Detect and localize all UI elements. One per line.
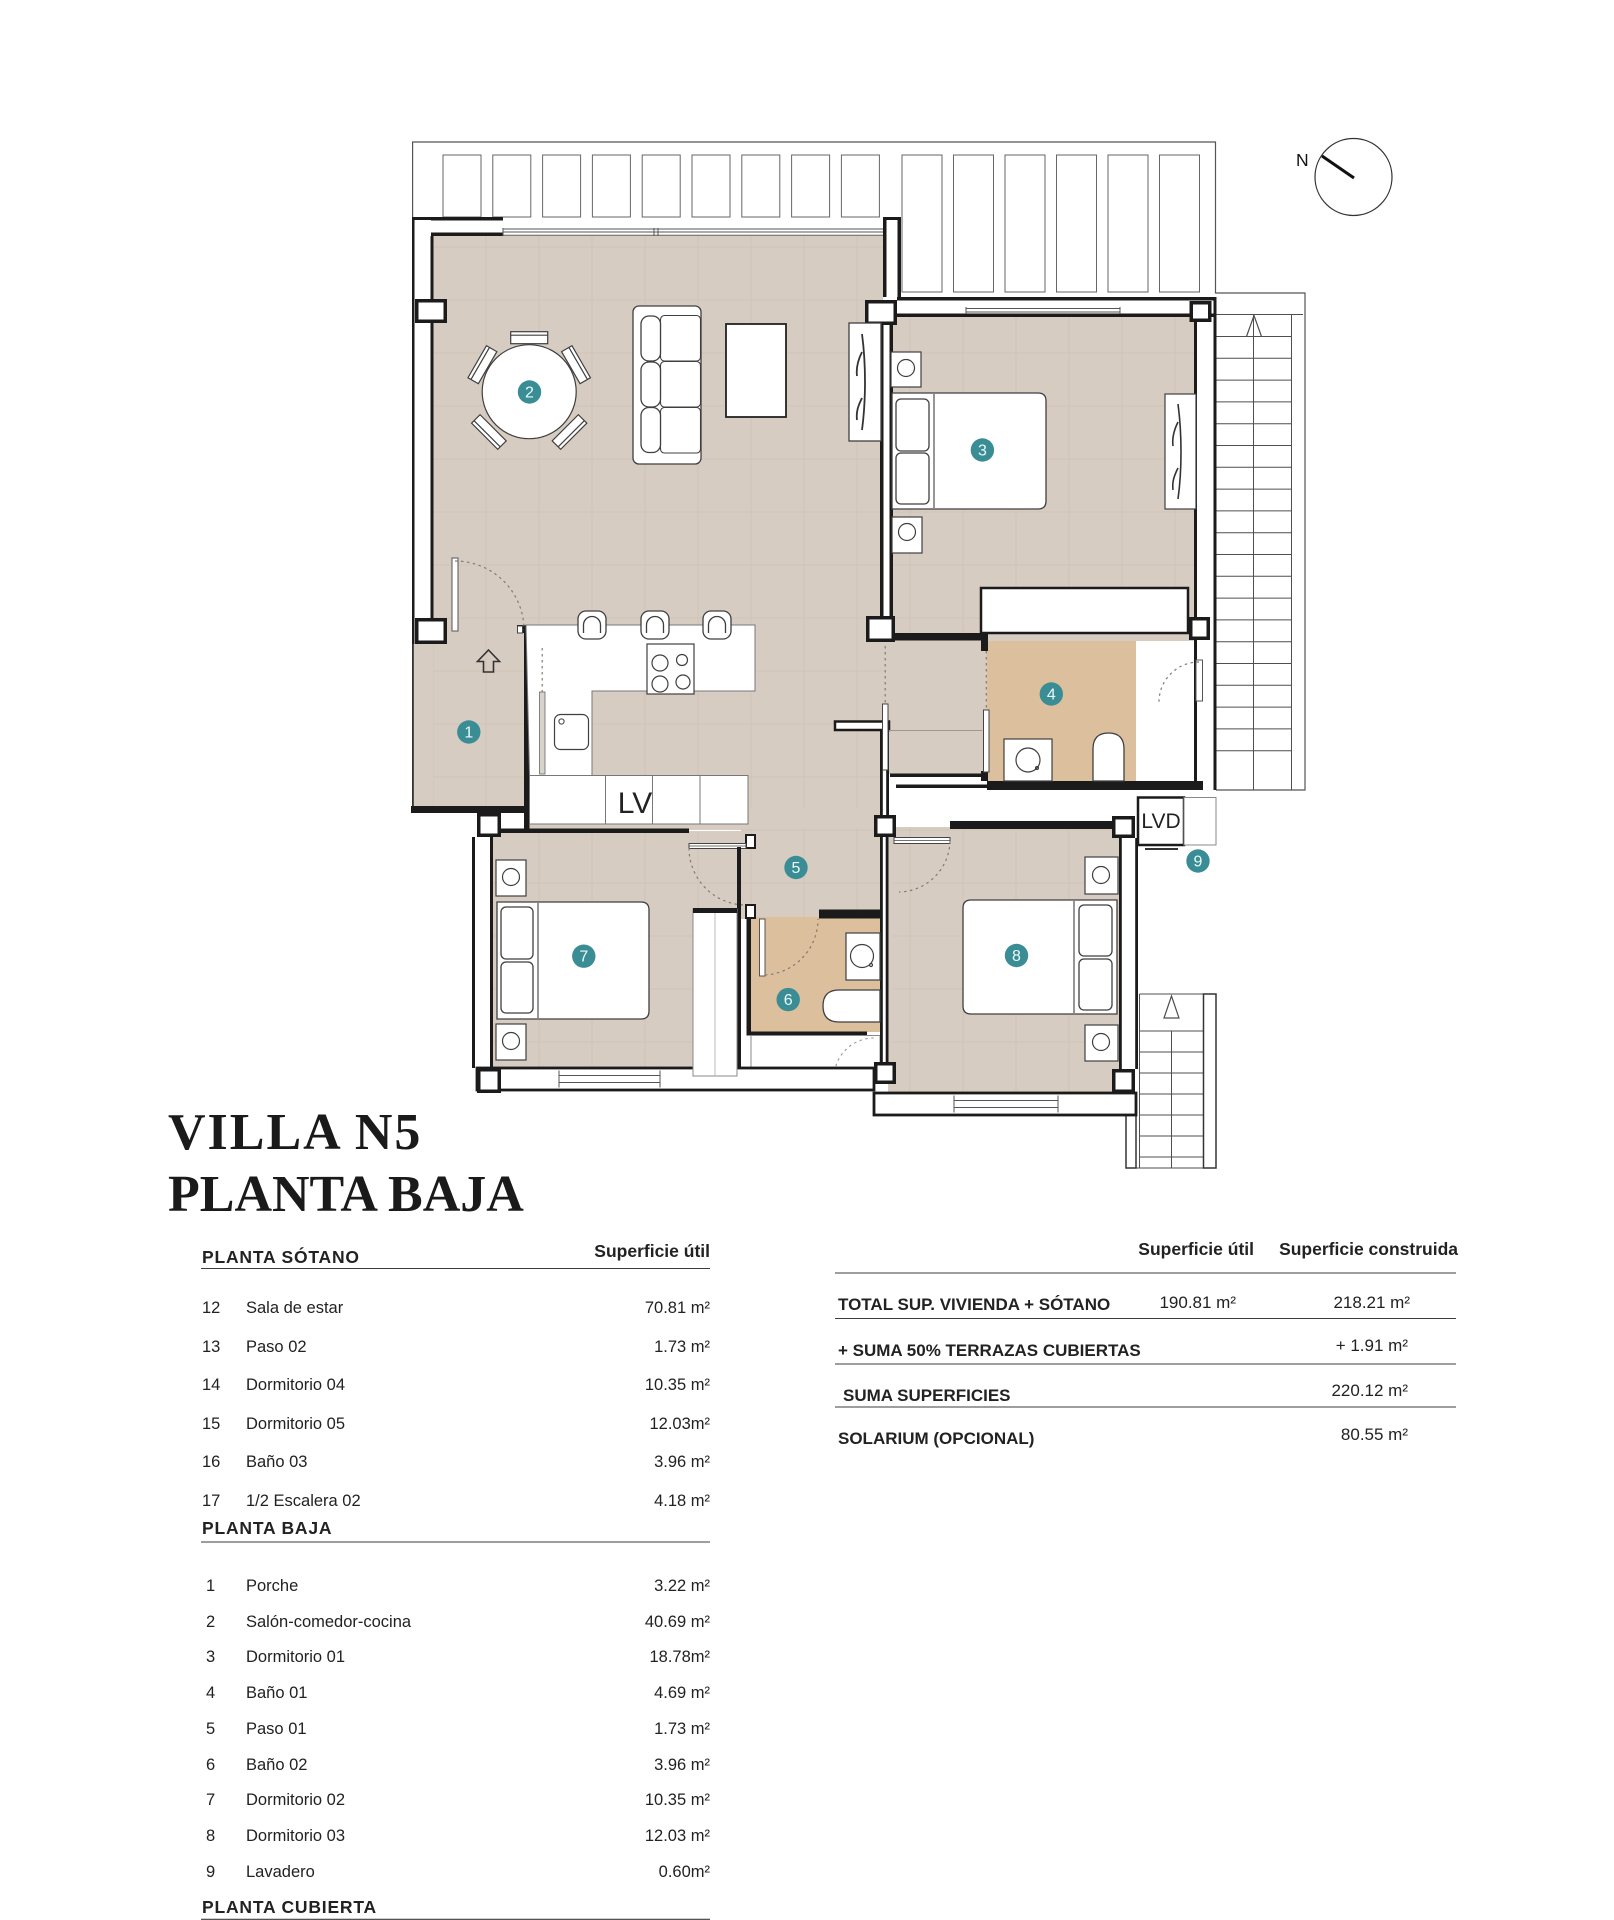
svg-text:LVD: LVD (1141, 810, 1180, 833)
svg-text:Dormitorio 04: Dormitorio 04 (246, 1376, 345, 1394)
svg-text:LV: LV (618, 787, 652, 820)
svg-text:1.73 m²: 1.73 m² (654, 1720, 710, 1738)
svg-text:80.55 m²: 80.55 m² (1341, 1425, 1408, 1444)
svg-text:Superficie construida: Superficie construida (1279, 1239, 1458, 1259)
svg-text:Porche: Porche (246, 1577, 298, 1595)
svg-text:PLANTA BAJA: PLANTA BAJA (202, 1518, 332, 1538)
svg-text:18.78m²: 18.78m² (649, 1648, 710, 1666)
svg-text:218.21 m²: 218.21 m² (1333, 1293, 1410, 1312)
svg-text:17: 17 (202, 1492, 220, 1510)
svg-text:2: 2 (206, 1613, 215, 1631)
svg-text:Dormitorio 02: Dormitorio 02 (246, 1791, 345, 1809)
svg-text:PLANTA SÓTANO: PLANTA SÓTANO (202, 1246, 360, 1267)
svg-text:1.73 m²: 1.73 m² (654, 1338, 710, 1356)
svg-text:Salón-comedor-cocina: Salón-comedor-cocina (246, 1613, 412, 1631)
svg-text:4.18 m²: 4.18 m² (654, 1492, 710, 1510)
svg-text:N: N (1296, 150, 1309, 170)
svg-text:4: 4 (1047, 687, 1056, 704)
svg-text:190.81 m²: 190.81 m² (1159, 1293, 1236, 1312)
svg-text:Paso 01: Paso 01 (246, 1720, 307, 1738)
svg-text:Paso 02: Paso 02 (246, 1338, 307, 1356)
svg-text:12.03 m²: 12.03 m² (645, 1827, 711, 1845)
svg-text:9: 9 (206, 1863, 215, 1881)
svg-text:70.81 m²: 70.81 m² (645, 1299, 711, 1317)
svg-text:6: 6 (206, 1756, 215, 1774)
svg-text:13: 13 (202, 1338, 220, 1356)
svg-text:Sala de estar: Sala de estar (246, 1299, 344, 1317)
svg-text:Dormitorio 03: Dormitorio 03 (246, 1827, 345, 1845)
svg-text:12.03m²: 12.03m² (649, 1415, 710, 1433)
svg-text:SOLARIUM (OPCIONAL): SOLARIUM (OPCIONAL) (838, 1429, 1034, 1448)
svg-text:+ SUMA 50% TERRAZAS CUBIERTAS: + SUMA 50% TERRAZAS CUBIERTAS (838, 1341, 1141, 1360)
svg-text:1: 1 (206, 1577, 215, 1595)
svg-text:SUMA SUPERFICIES: SUMA SUPERFICIES (843, 1386, 1011, 1405)
svg-text:TOTAL SUP. VIVIENDA + SÓTANO: TOTAL SUP. VIVIENDA + SÓTANO (838, 1295, 1110, 1314)
svg-text:1: 1 (464, 725, 473, 742)
svg-text:PLANTA CUBIERTA: PLANTA CUBIERTA (202, 1897, 377, 1917)
svg-text:9: 9 (1194, 854, 1203, 871)
svg-text:40.69 m²: 40.69 m² (645, 1613, 711, 1631)
svg-text:5: 5 (792, 860, 801, 877)
svg-text:3: 3 (978, 443, 987, 460)
svg-text:3.96 m²: 3.96 m² (654, 1756, 710, 1774)
svg-text:3: 3 (206, 1648, 215, 1666)
svg-text:6: 6 (784, 992, 793, 1009)
svg-text:4.69 m²: 4.69 m² (654, 1684, 710, 1702)
svg-text:3.22 m²: 3.22 m² (654, 1577, 710, 1595)
svg-text:10.35 m²: 10.35 m² (645, 1791, 711, 1809)
svg-text:1/2 Escalera 02: 1/2 Escalera 02 (246, 1492, 361, 1510)
svg-text:2: 2 (525, 385, 534, 402)
svg-text:+ 1.91 m²: + 1.91 m² (1336, 1336, 1409, 1355)
svg-text:8: 8 (206, 1827, 215, 1845)
svg-text:8: 8 (1012, 948, 1021, 965)
svg-text:0.60m²: 0.60m² (659, 1863, 711, 1881)
svg-text:Dormitorio 01: Dormitorio 01 (246, 1648, 345, 1666)
svg-text:Baño 01: Baño 01 (246, 1684, 307, 1702)
svg-text:PLANTA BAJA: PLANTA BAJA (168, 1166, 524, 1223)
svg-text:3.96 m²: 3.96 m² (654, 1453, 710, 1471)
svg-text:Dormitorio 05: Dormitorio 05 (246, 1415, 345, 1433)
svg-text:7: 7 (579, 949, 588, 966)
svg-text:10.35 m²: 10.35 m² (645, 1376, 711, 1394)
svg-text:14: 14 (202, 1376, 220, 1394)
svg-text:4: 4 (206, 1684, 215, 1702)
svg-text:7: 7 (206, 1791, 215, 1809)
svg-text:5: 5 (206, 1720, 215, 1738)
svg-text:Superficie útil: Superficie útil (1138, 1239, 1254, 1259)
svg-text:Lavadero: Lavadero (246, 1863, 315, 1881)
svg-text:220.12 m²: 220.12 m² (1331, 1381, 1408, 1400)
svg-text:12: 12 (202, 1299, 220, 1317)
svg-text:VILLA N5: VILLA N5 (168, 1104, 422, 1161)
svg-text:Baño 03: Baño 03 (246, 1453, 307, 1471)
svg-text:16: 16 (202, 1453, 220, 1471)
svg-text:Superficie útil: Superficie útil (594, 1241, 710, 1261)
svg-text:Baño 02: Baño 02 (246, 1756, 307, 1774)
svg-text:15: 15 (202, 1415, 220, 1433)
